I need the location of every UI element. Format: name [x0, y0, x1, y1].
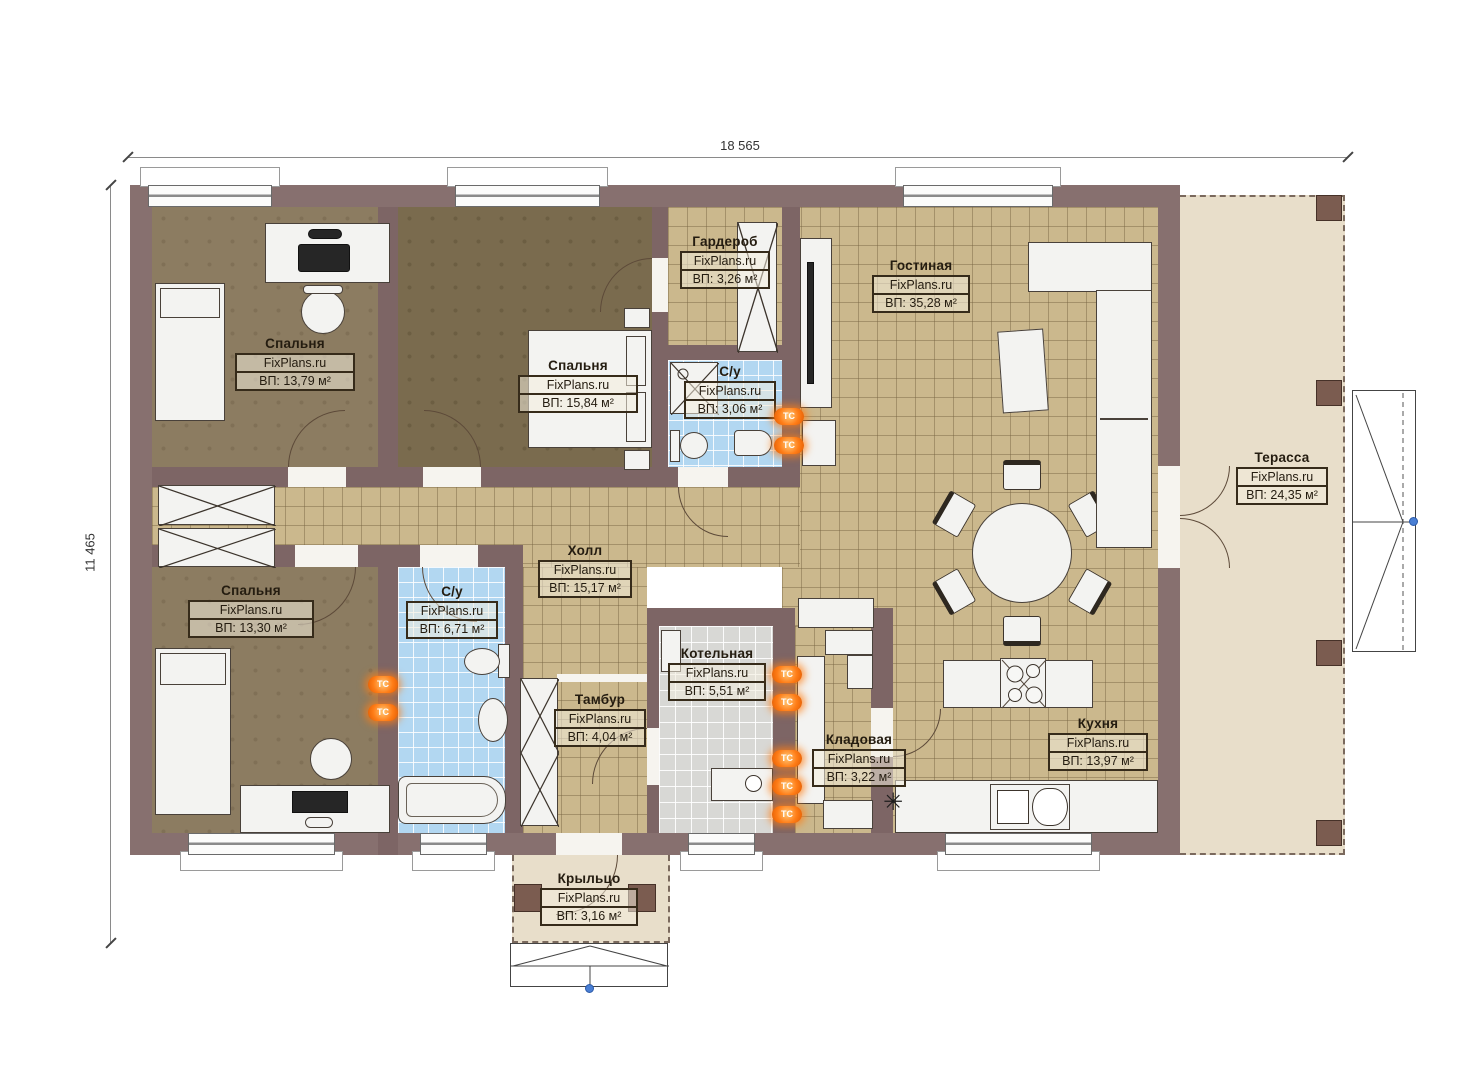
toilet-bowl — [464, 648, 500, 675]
tv-console — [800, 238, 832, 408]
sofa-top-arm — [1028, 242, 1152, 292]
terrace-post — [1316, 820, 1342, 846]
wall-bath-top — [478, 545, 505, 567]
heating-icon: ТС — [772, 750, 802, 767]
brand-watermark: FixPlans.ru — [670, 665, 764, 683]
brand-watermark: FixPlans.ru — [540, 562, 630, 580]
window — [688, 833, 755, 855]
terrace-post — [1316, 640, 1342, 666]
room-title: Котельная — [668, 646, 766, 661]
door-opening-boiler — [647, 728, 659, 785]
room-title: Холл — [538, 543, 632, 558]
room-label-terrace: Терасса FixPlans.ru ВП: 24,35 м² — [1236, 450, 1328, 505]
dining-chair — [1003, 616, 1041, 646]
sofa-cushion-line — [1100, 418, 1148, 420]
porch-steps — [510, 943, 668, 987]
room-area: ВП: 3,16 м² — [542, 908, 636, 924]
room-label-porch: Крыльцо FixPlans.ru ВП: 3,16 м² — [540, 871, 638, 926]
boiler-unit — [711, 768, 773, 801]
room-title: С/у — [684, 364, 776, 379]
wall-vestibule-boiler — [647, 626, 659, 728]
dimension-tick — [105, 179, 116, 190]
room-title: Спальня — [188, 583, 314, 598]
brand-watermark: FixPlans.ru — [542, 890, 636, 908]
window — [188, 833, 335, 855]
wall-bath-top — [398, 545, 420, 567]
brand-watermark: FixPlans.ru — [520, 377, 636, 395]
room-area: ВП: 15,17 м² — [540, 580, 630, 596]
room-area: ВП: 6,71 м² — [408, 621, 496, 637]
wall-right-upper — [1158, 207, 1180, 466]
heating-icon: ТС — [774, 437, 804, 454]
kitchen-sink — [997, 790, 1029, 824]
room-area: ВП: 15,84 м² — [520, 395, 636, 411]
door-opening-wardrobe — [652, 258, 668, 312]
window — [148, 185, 272, 207]
sink — [478, 698, 508, 742]
freezer-icon: ✳ — [878, 788, 908, 817]
room-title: Крыльцо — [540, 871, 638, 886]
bed-pillow — [160, 288, 220, 318]
room-area: ВП: 4,04 м² — [556, 729, 644, 745]
room-title: Спальня — [518, 358, 638, 373]
brand-watermark: FixPlans.ru — [682, 253, 768, 271]
boiler-dial — [745, 775, 762, 792]
porch-post — [514, 884, 542, 912]
brand-watermark: FixPlans.ru — [190, 602, 312, 620]
marker-dot — [585, 984, 594, 993]
terrace-stairs — [1352, 390, 1416, 652]
door-opening-bathroom-big — [420, 545, 478, 567]
room-area: ВП: 13,97 м² — [1050, 753, 1146, 769]
heating-icon: ТС — [368, 704, 398, 721]
room-area: ВП: 5,51 м² — [670, 683, 764, 699]
heating-icon: ТС — [368, 676, 398, 693]
room-label-vestibule: Тамбур FixPlans.ru ВП: 4,04 м² — [554, 692, 646, 747]
brand-watermark: FixPlans.ru — [408, 603, 496, 621]
room-label-boiler: Котельная FixPlans.ru ВП: 5,51 м² — [668, 646, 766, 701]
room-area: ВП: 3,22 м² — [814, 769, 904, 785]
wall-hall-top — [481, 467, 652, 487]
heating-icon: ТС — [774, 408, 804, 425]
room-area: ВП: 3,06 м² — [686, 401, 774, 417]
wall-hall-top — [668, 467, 678, 487]
kitchen-upper-cabinet — [798, 598, 874, 628]
washing-machine — [734, 430, 772, 456]
door-opening-bathroom-small — [678, 467, 728, 487]
window-sill — [447, 167, 608, 187]
wall-storage-kitchen — [871, 608, 893, 708]
door-opening-bedroom2 — [423, 467, 481, 487]
dimension-height-label: 11 465 — [83, 523, 98, 583]
room-label-wardrobe: Гардероб FixPlans.ru ВП: 3,26 м² — [680, 234, 770, 289]
room-title: С/у — [406, 584, 498, 599]
wall-hall-top — [346, 467, 378, 487]
room-label-bedroom3: Спальня FixPlans.ru ВП: 13,30 м² — [188, 583, 314, 638]
dining-table — [972, 503, 1072, 603]
brand-watermark: FixPlans.ru — [237, 355, 353, 373]
hall-closet — [158, 485, 275, 525]
room-title: Тамбур — [554, 692, 646, 707]
door-opening-bedroom1 — [288, 467, 346, 487]
room-label-bedroom2: Спальня FixPlans.ru ВП: 15,84 м² — [518, 358, 638, 413]
nightstand — [624, 308, 650, 328]
desk-item — [308, 229, 342, 239]
window — [420, 833, 487, 855]
room-label-bathroom-big: С/у FixPlans.ru ВП: 6,71 м² — [406, 584, 498, 639]
chair-back — [303, 285, 343, 294]
window — [903, 185, 1053, 207]
room-area: ВП: 35,28 м² — [874, 295, 968, 311]
door-opening-bedroom3 — [295, 545, 358, 567]
room-label-bedroom1: Спальня FixPlans.ru ВП: 13,79 м² — [235, 336, 355, 391]
room-title: Кухня — [1048, 716, 1148, 731]
wall-hall-top — [728, 467, 800, 487]
hall-closet — [158, 528, 275, 567]
kitchen-basin — [1032, 788, 1068, 826]
room-area: ВП: 13,30 м² — [190, 620, 312, 636]
vestibule-closet — [520, 678, 558, 826]
tv — [807, 262, 814, 384]
wall-left — [130, 207, 152, 855]
brand-watermark: FixPlans.ru — [814, 751, 904, 769]
heating-icon: ТС — [772, 778, 802, 795]
room-label-bathroom-small: С/у FixPlans.ru ВП: 3,06 м² — [684, 364, 776, 419]
window — [455, 185, 600, 207]
bed-pillow — [160, 653, 226, 685]
wall-hall-top — [398, 467, 423, 487]
room-title: Терасса — [1236, 450, 1328, 465]
heating-icon: ТС — [772, 666, 802, 683]
room-title: Спальня — [235, 336, 355, 351]
cooktop — [1000, 658, 1046, 708]
brand-watermark: FixPlans.ru — [556, 711, 644, 729]
window — [945, 833, 1092, 855]
room-title: Гостиная — [872, 258, 970, 273]
window-sill — [895, 167, 1061, 187]
wall-bedroom3-top — [358, 545, 378, 567]
dimension-width-label: 18 565 — [698, 138, 782, 153]
dimension-line-top — [128, 157, 1348, 158]
door-opening-entry — [556, 833, 622, 855]
room-label-hall: Холл FixPlans.ru ВП: 15,17 м² — [538, 543, 632, 598]
wall-hall-top — [152, 467, 288, 487]
marker-dot — [1409, 517, 1418, 526]
floor-plan: 18 565 11 465 — [0, 0, 1473, 1080]
printer — [298, 244, 350, 272]
cabinet — [802, 420, 836, 466]
wall-bedroom2-wardrobe — [652, 312, 668, 487]
dining-chair — [1003, 460, 1041, 490]
brand-watermark: FixPlans.ru — [1050, 735, 1146, 753]
room-title: Гардероб — [680, 234, 770, 249]
room-area: ВП: 3,26 м² — [682, 271, 768, 287]
room-label-living: Гостиная FixPlans.ru ВП: 35,28 м² — [872, 258, 970, 313]
coffee-table — [997, 328, 1049, 413]
wall-bedroom2-wardrobe — [652, 207, 668, 258]
stool — [310, 738, 352, 780]
room-label-kitchen: Кухня FixPlans.ru ВП: 13,97 м² — [1048, 716, 1148, 771]
room-area: ВП: 24,35 м² — [1238, 487, 1326, 503]
dimension-line-left — [110, 185, 111, 943]
storage-shelf — [823, 800, 873, 829]
storage-shelf — [825, 630, 873, 655]
computer-monitor — [292, 791, 348, 813]
wall-right-lower — [1158, 568, 1180, 833]
bathtub-inner — [406, 783, 498, 817]
heating-icon: ТС — [772, 806, 802, 823]
window-sill — [140, 167, 280, 187]
toilet-tank — [670, 430, 680, 462]
threshold-hall-vestibule — [557, 674, 647, 682]
toilet-bowl — [680, 432, 708, 459]
storage-shelf — [847, 655, 873, 689]
terrace-post — [1316, 195, 1342, 221]
mouse — [305, 817, 333, 828]
wall-boiler-storage — [773, 608, 795, 833]
wall-vestibule-boiler — [647, 785, 659, 833]
office-chair — [301, 290, 345, 334]
terrace-post — [1316, 380, 1342, 406]
heating-icon: ТС — [772, 694, 802, 711]
brand-watermark: FixPlans.ru — [1238, 469, 1326, 487]
room-area: ВП: 13,79 м² — [237, 373, 353, 389]
room-title: Кладовая — [812, 732, 906, 747]
room-label-storage: Кладовая FixPlans.ru ВП: 3,22 м² — [812, 732, 906, 787]
brand-watermark: FixPlans.ru — [686, 383, 774, 401]
dimension-tick — [105, 937, 116, 948]
nightstand — [624, 450, 650, 470]
brand-watermark: FixPlans.ru — [874, 277, 968, 295]
door-opening-terrace — [1158, 466, 1180, 568]
